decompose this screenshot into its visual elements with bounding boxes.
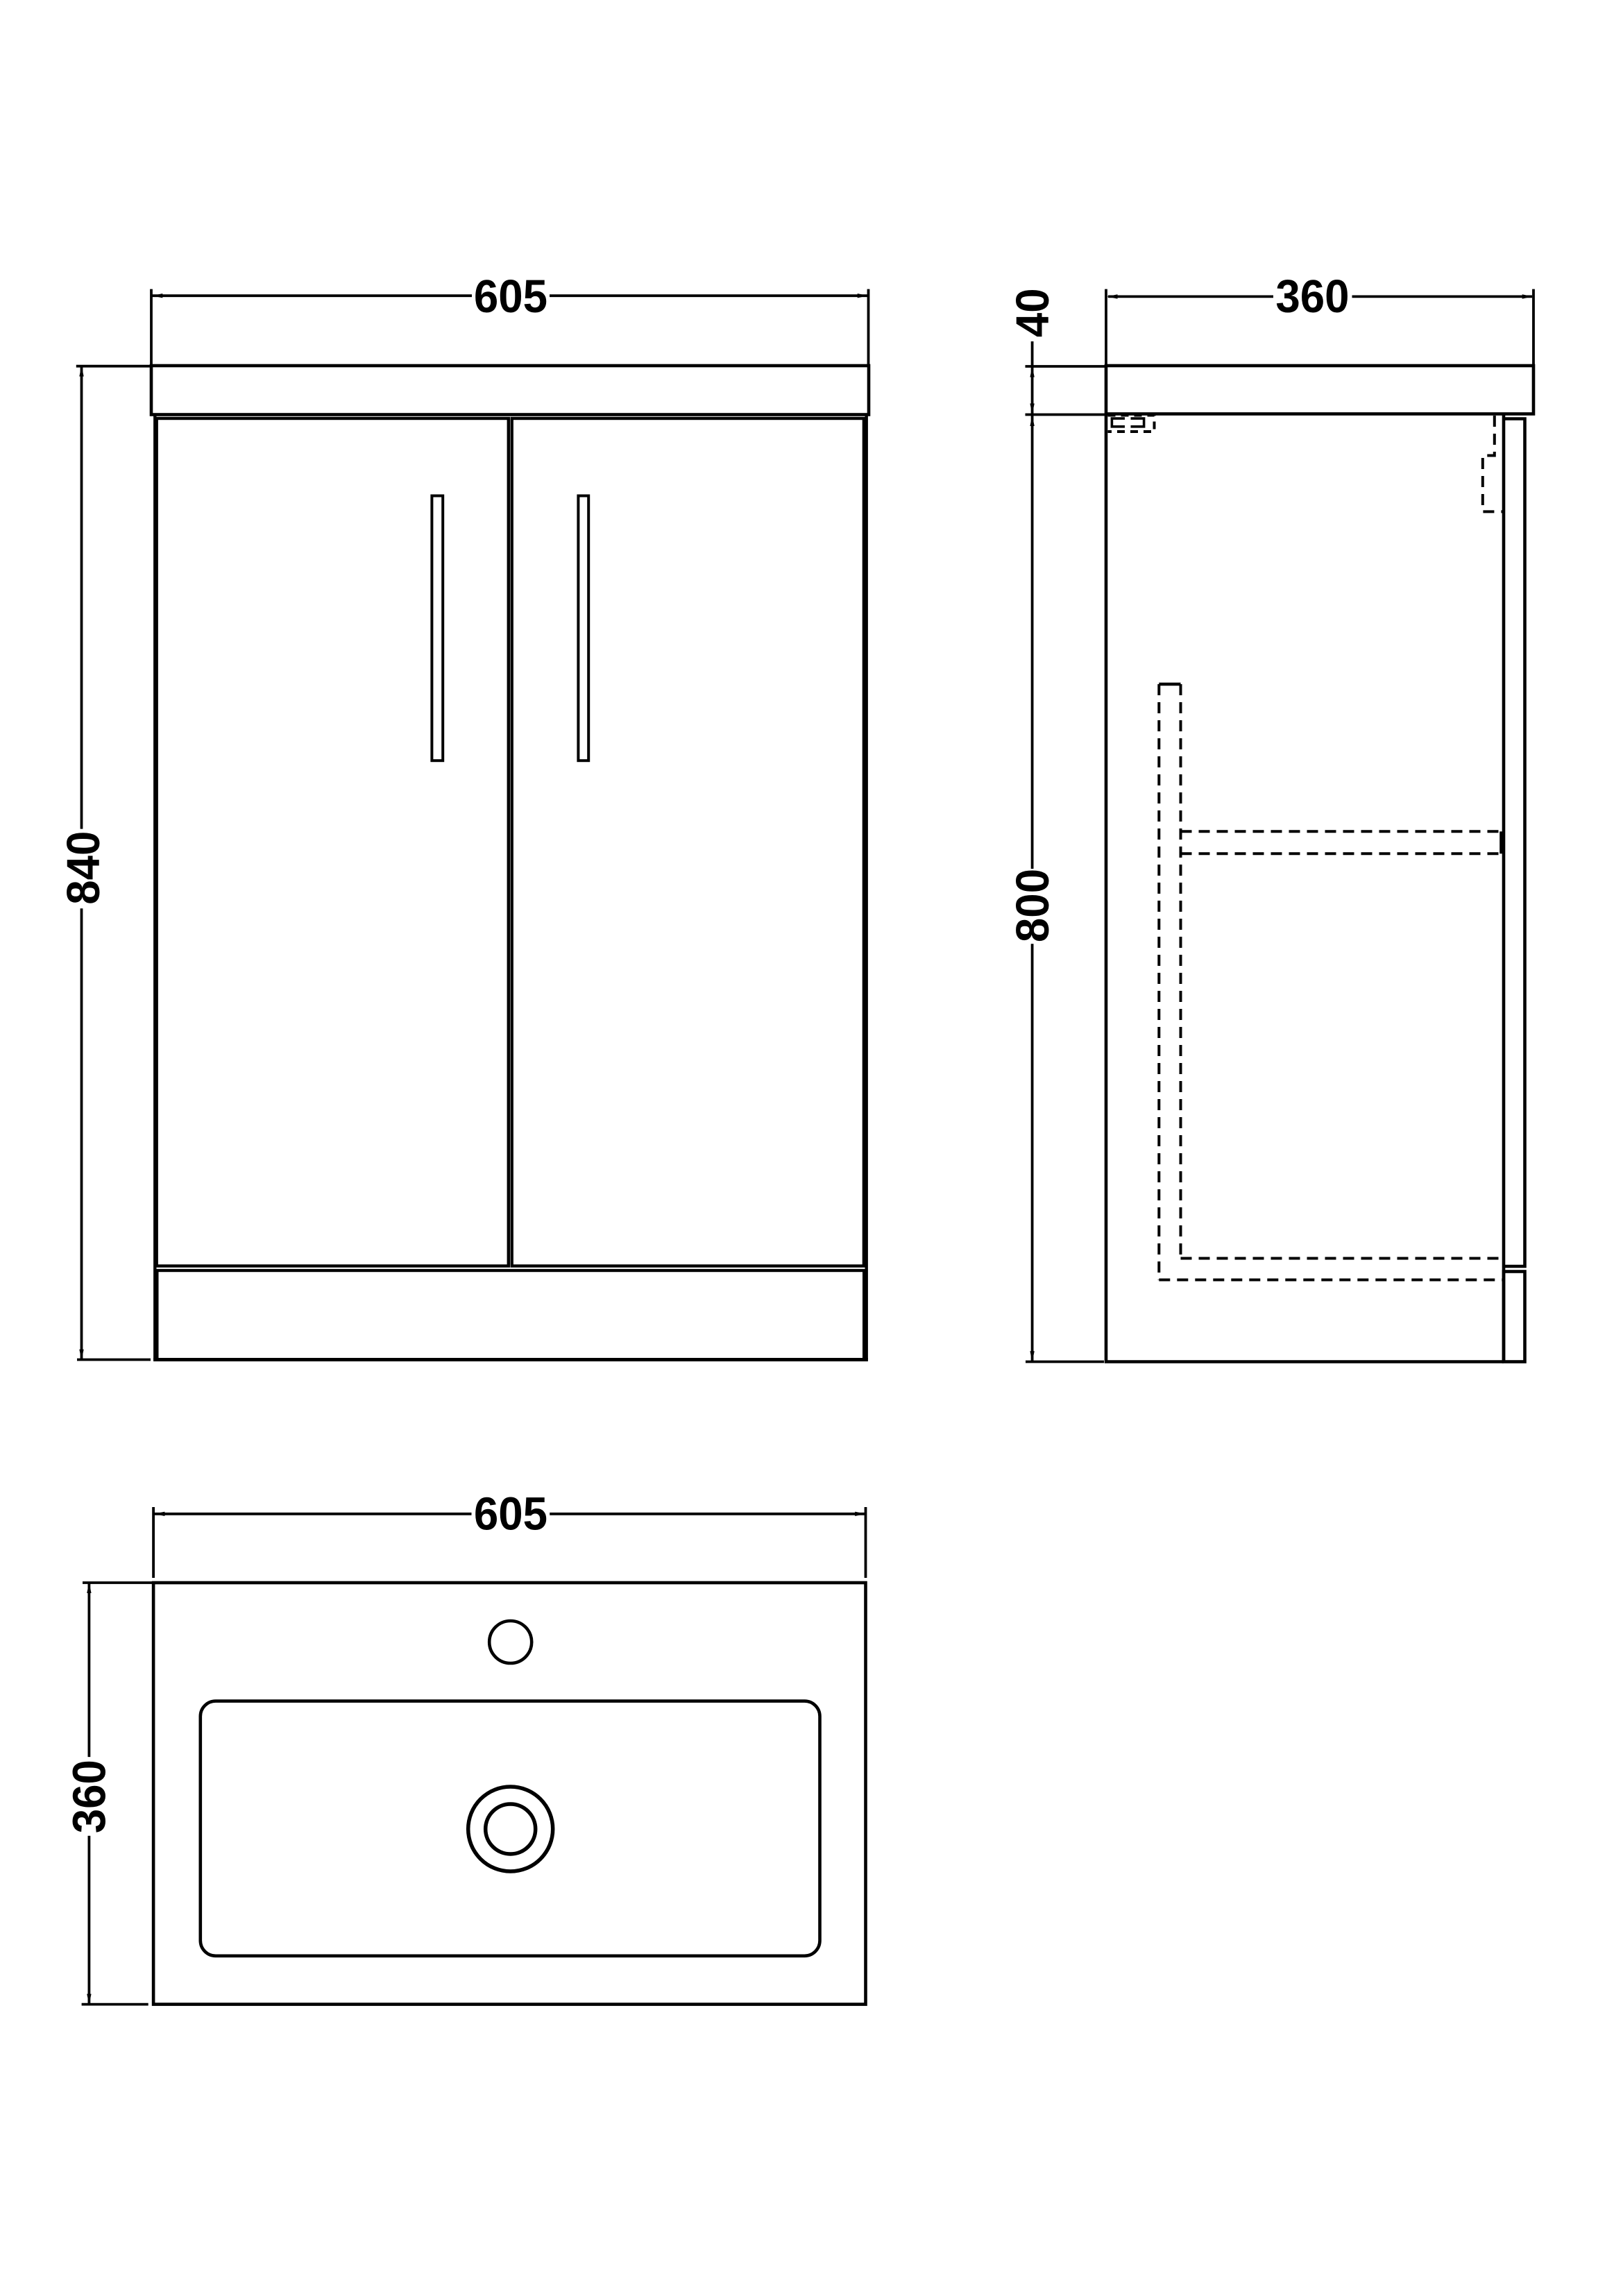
svg-text:40: 40 [1007, 288, 1059, 337]
svg-text:840: 840 [58, 831, 110, 905]
svg-text:605: 605 [474, 1488, 547, 1540]
svg-text:605: 605 [474, 271, 547, 323]
svg-text:360: 360 [63, 1760, 115, 1833]
svg-text:360: 360 [1275, 271, 1349, 323]
svg-text:800: 800 [1007, 869, 1059, 942]
